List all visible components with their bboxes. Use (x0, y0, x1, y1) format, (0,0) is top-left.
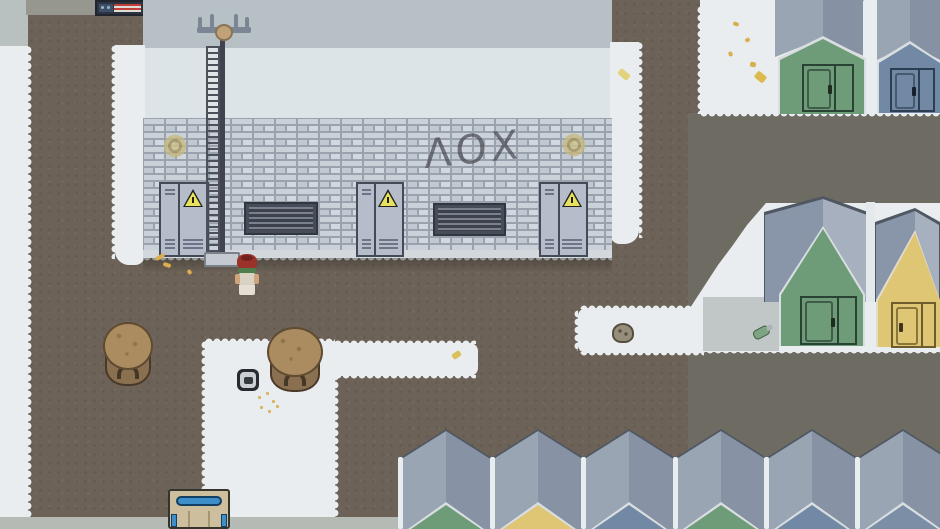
tent-roof-row-unit (857, 429, 940, 529)
door-leaf (805, 301, 833, 342)
green-tent-door[interactable] (800, 296, 857, 345)
door-handle (831, 318, 835, 327)
door-divider (837, 298, 839, 343)
tent-gap (673, 457, 678, 529)
character-cap-crown (241, 255, 253, 261)
metal-door-1[interactable] (159, 182, 209, 257)
antenna (198, 17, 202, 33)
door-vent (362, 239, 371, 249)
stove-burner (244, 377, 253, 384)
door-vent (562, 239, 582, 249)
character-arm (235, 274, 240, 284)
sign-dot (101, 6, 104, 9)
tent-gap (398, 457, 403, 529)
camp-stove[interactable] (237, 369, 259, 391)
door-vent (362, 189, 371, 197)
crumb (268, 410, 271, 413)
tower-pole (220, 40, 225, 254)
leaf (750, 62, 757, 68)
rock[interactable] (612, 323, 634, 343)
snow-edge (28, 46, 34, 517)
antenna (210, 14, 214, 30)
wall-emblem (162, 134, 188, 158)
tent-gap (581, 457, 586, 529)
vent-slats (438, 208, 501, 231)
wall-emblem (560, 133, 588, 157)
door-vent (379, 239, 398, 249)
yellow-tent-door[interactable] (891, 302, 936, 348)
antenna-hub (215, 24, 233, 41)
tent-roof-row-unit (492, 429, 584, 529)
tent-roof-row-unit (583, 429, 675, 529)
crumb (258, 396, 261, 399)
roof-ridge-gap (866, 202, 875, 302)
snow-strip-west (0, 46, 28, 519)
door-divider (558, 184, 560, 255)
tower-base-pad[interactable] (204, 252, 240, 267)
tent-roof-row-unit (400, 429, 492, 529)
snow-edge (318, 375, 476, 381)
door-vent (545, 239, 554, 249)
door-divider (374, 184, 376, 255)
antenna (245, 17, 249, 33)
tower-ladder[interactable] (206, 46, 220, 254)
game-viewport[interactable]: ΛΟΧ (0, 0, 940, 529)
antenna (234, 14, 238, 30)
door-vent (165, 239, 175, 249)
character-arm (254, 274, 259, 284)
blue-tent-door[interactable] (890, 68, 935, 112)
green-tent-door[interactable] (802, 64, 854, 112)
crumb (266, 392, 269, 395)
crate-crease (208, 511, 210, 527)
door-divider (921, 304, 923, 346)
snow-edge (318, 338, 476, 344)
spool-top (267, 327, 323, 377)
snow-edge (639, 42, 645, 238)
character-legs (239, 285, 255, 295)
wall-vent (433, 203, 506, 236)
vent-slats (249, 207, 313, 230)
crumb (272, 400, 275, 403)
crumb (260, 406, 263, 409)
metal-door-3[interactable] (539, 182, 588, 257)
snow-edge (580, 352, 704, 358)
snow-path-east (578, 308, 704, 353)
sign-stripes (114, 4, 141, 12)
tent-gap (764, 457, 769, 529)
snow-edge (580, 303, 704, 309)
snow-drift-left (115, 45, 145, 265)
door-vent (183, 239, 203, 249)
wall-vent (244, 202, 318, 235)
crumb (276, 405, 279, 408)
hazard-warning-icon (183, 189, 203, 207)
crate-corner (171, 514, 177, 527)
tent-gap (490, 457, 495, 529)
metal-door-2[interactable] (356, 182, 404, 257)
hazard-warning-icon (378, 189, 398, 207)
tent-roof-row-unit (675, 429, 767, 529)
spool-top (103, 322, 153, 370)
roof-corner-west (0, 0, 28, 46)
crate-crease (188, 511, 190, 527)
door-handle (912, 87, 916, 96)
striped-banner-sign (95, 0, 145, 16)
hazard-warning-icon (562, 189, 582, 207)
door-vent (165, 189, 175, 197)
door-divider (178, 184, 180, 255)
wooden-spool-table[interactable] (103, 322, 153, 388)
tent-roof-row-unit (766, 429, 858, 529)
door-divider (834, 66, 836, 110)
wall-graffiti: ΛΟΧ (424, 125, 523, 175)
snow-edge (695, 6, 701, 114)
bottle-cap (766, 324, 774, 331)
supply-crate[interactable] (168, 489, 230, 529)
snow-edge (572, 310, 578, 351)
sign-dot (107, 6, 110, 9)
tent-gap (855, 457, 860, 529)
door-handle (828, 85, 832, 94)
wooden-spool-table[interactable] (267, 327, 323, 393)
crate-corner (221, 514, 227, 527)
snow-edge (109, 45, 115, 259)
door-vent (545, 189, 554, 197)
player-character[interactable] (236, 254, 258, 296)
door-divider (918, 70, 920, 110)
crate-blue-bar (176, 496, 222, 506)
door-handle (899, 323, 903, 332)
